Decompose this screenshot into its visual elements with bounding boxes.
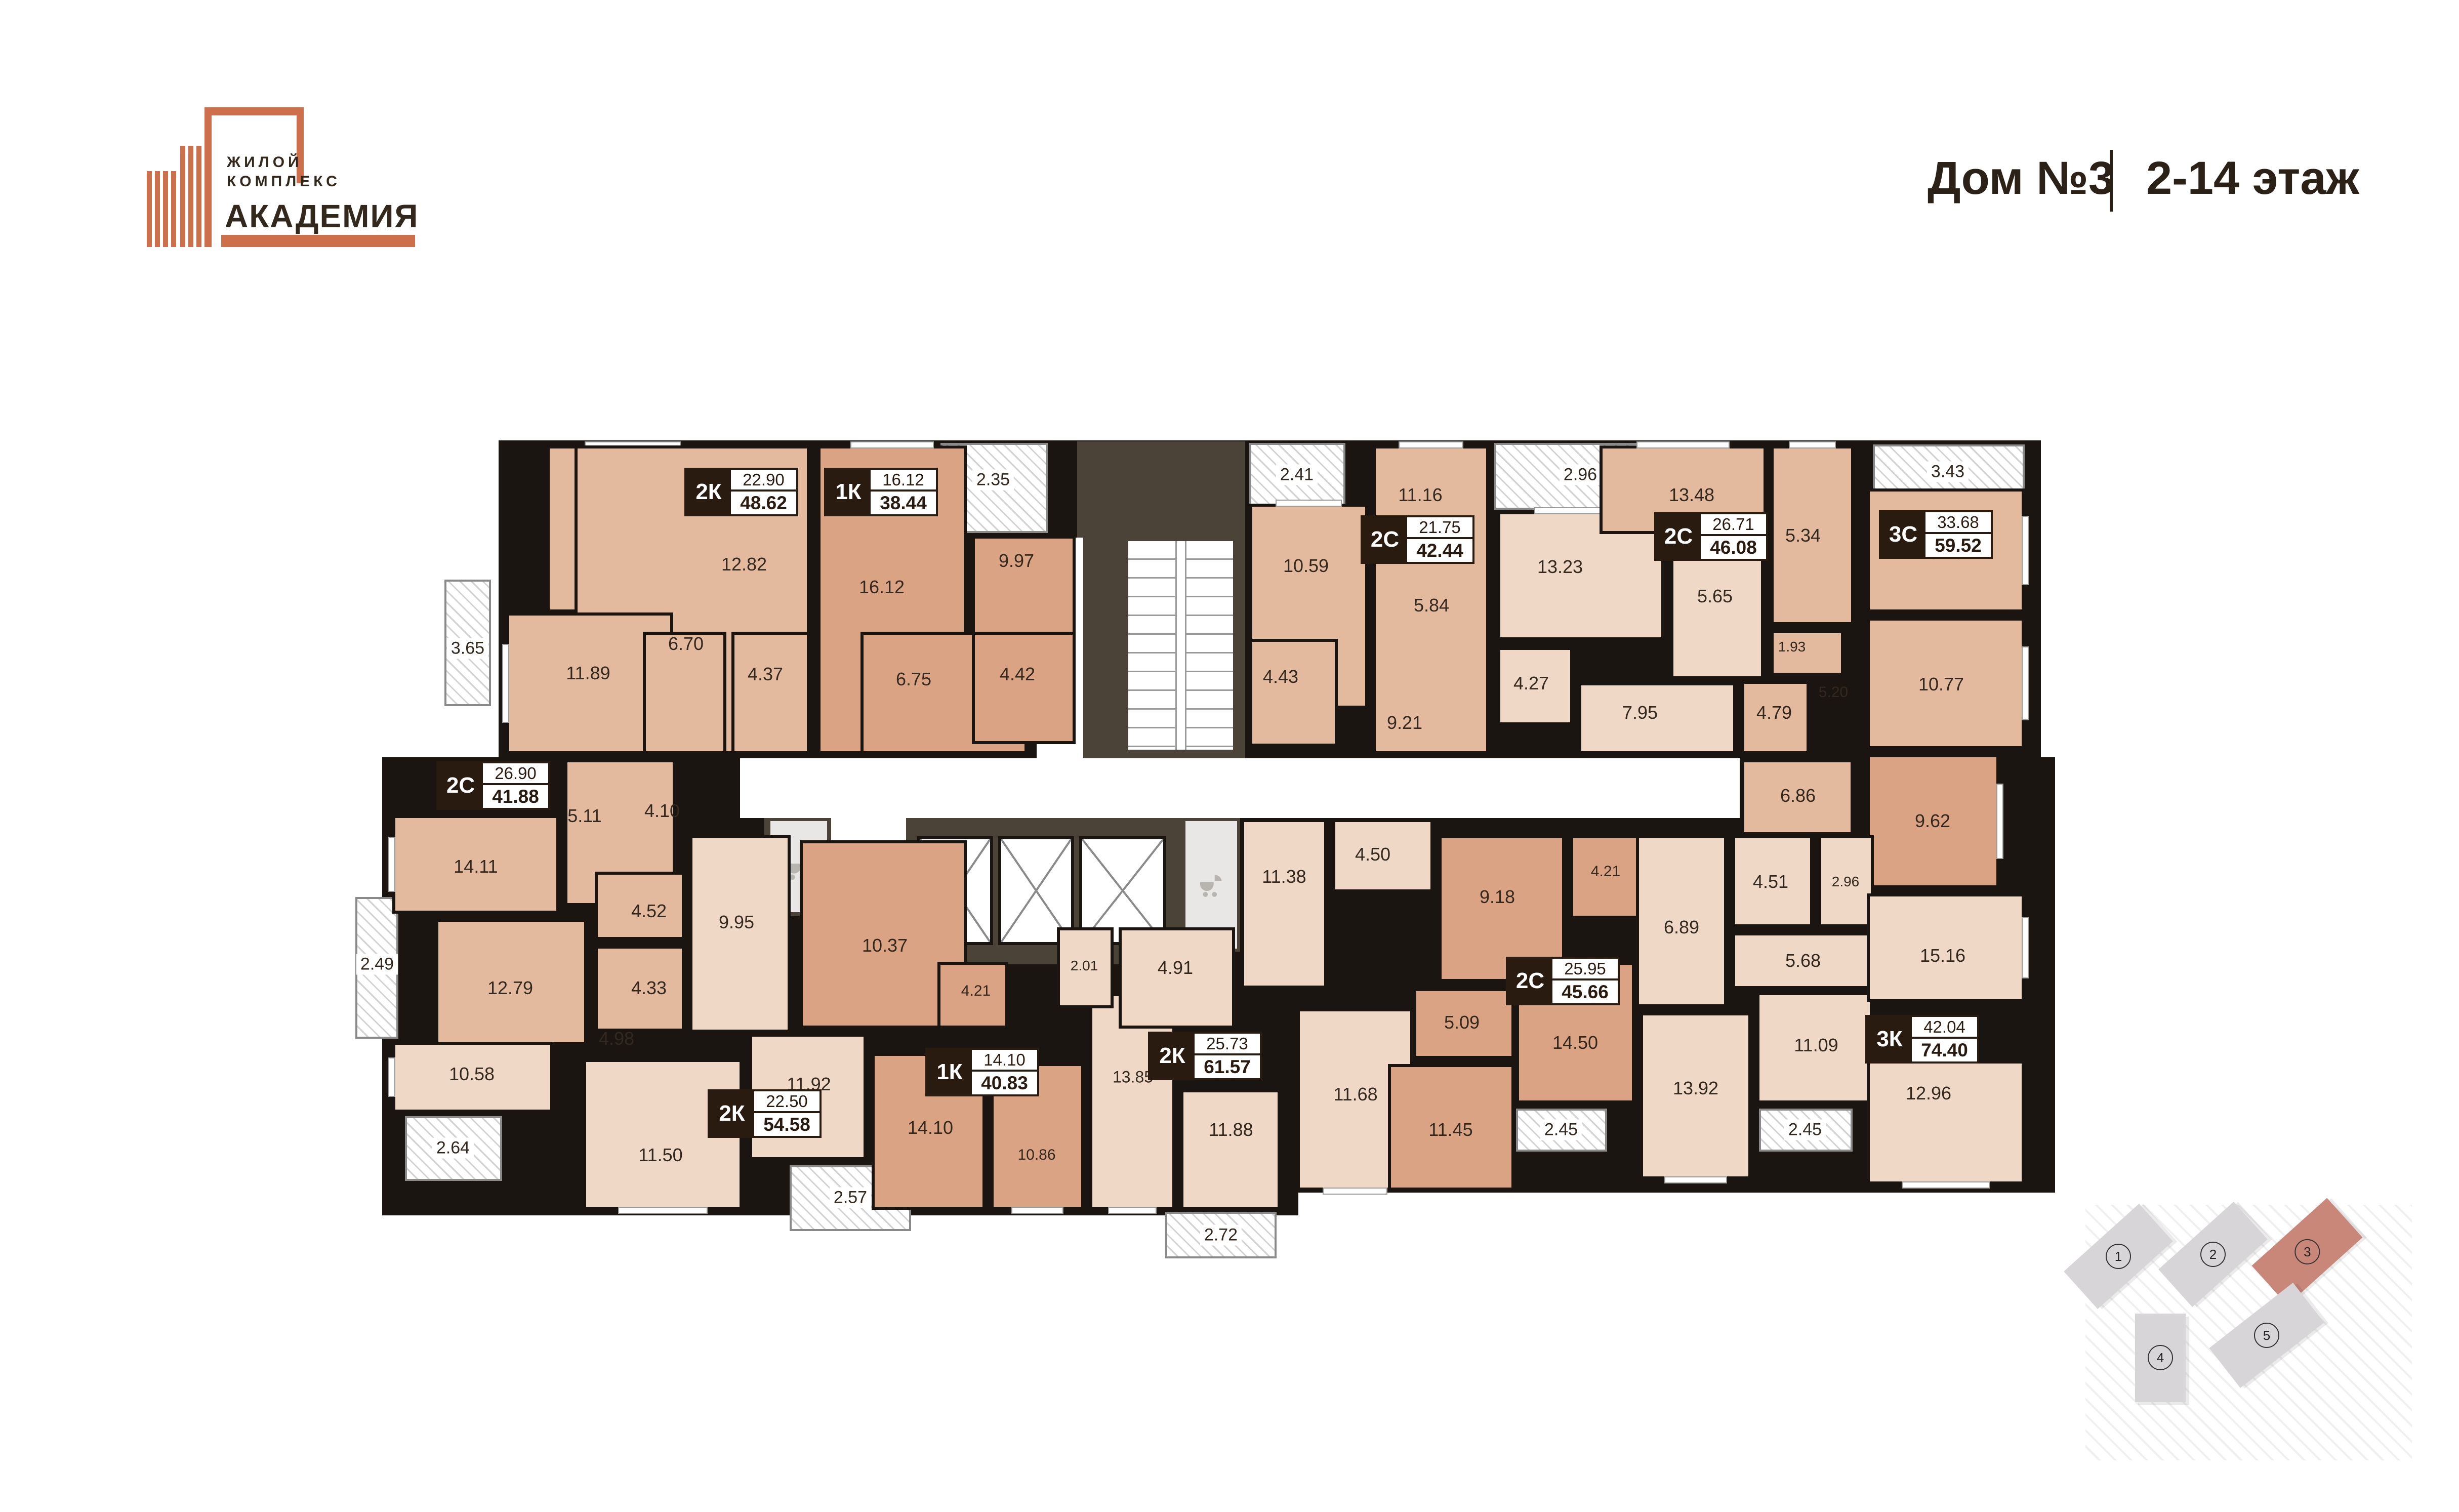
room-area-label: 15.16 (1920, 945, 1965, 966)
living-area: 26.90 (483, 763, 548, 785)
apartment-tag-2с[interactable]: 2С26.7146.08 (1654, 512, 1768, 561)
balcony-area-label: 2.45 (1540, 1120, 1582, 1140)
room-area-label: 4.43 (1263, 666, 1298, 687)
room-area-label: 5.09 (1444, 1012, 1480, 1033)
balcony-area-label: 2.35 (972, 470, 1014, 491)
page: ЖИЛОЙ КОМПЛЕКС АКАДЕМИЯ Дом №3 2-14 этаж… (0, 0, 2459, 1512)
apartment-type: 2К (686, 470, 731, 514)
total-area: 74.40 (1912, 1039, 1977, 1061)
balcony-area-label: 2.45 (1784, 1120, 1826, 1140)
total-area: 40.83 (972, 1072, 1037, 1094)
apartment-type: 2С (1363, 517, 1407, 562)
room-area-label: 10.59 (1283, 555, 1329, 577)
room-area-label: 6.70 (668, 633, 704, 655)
room-area-label: 4.79 (1756, 702, 1792, 723)
room-area-label: 9.95 (719, 912, 754, 933)
apartment-type: 2С (1656, 514, 1701, 559)
apartment-tag-1к[interactable]: 1К14.1040.83 (925, 1048, 1039, 1096)
window (1664, 1176, 1727, 1183)
balcony-area-label: 3.43 (1927, 462, 1969, 482)
room (1867, 1060, 2025, 1184)
balcony-area-label: 2.41 (1276, 465, 1318, 485)
window (1996, 784, 2003, 859)
room-area-label: 9.21 (1387, 712, 1422, 733)
room-area-label: 13.48 (1669, 484, 1714, 506)
window (1636, 441, 1730, 448)
total-area: 45.66 (1552, 980, 1618, 1003)
room-area-label: 11.50 (638, 1145, 682, 1166)
apartment-tag-2с[interactable]: 2С25.9545.66 (1506, 957, 1620, 1005)
room-area-label: 4.21 (961, 983, 991, 1000)
corridor (740, 758, 1740, 818)
apartment-tag-2с[interactable]: 2С26.9041.88 (436, 761, 550, 810)
room-area-label: 4.91 (1158, 957, 1193, 978)
room (689, 835, 791, 1033)
apartment-areas: 25.9545.66 (1552, 959, 1618, 1003)
apartment-areas: 22.5054.58 (754, 1091, 819, 1136)
total-area: 42.44 (1407, 539, 1472, 562)
apartment-tag-2с[interactable]: 2С21.7542.44 (1361, 515, 1474, 564)
room-area-label: 14.50 (1552, 1032, 1598, 1053)
window (2022, 516, 2029, 585)
room (1241, 819, 1327, 989)
room-area-label: 9.18 (1480, 886, 1515, 908)
room-area-label: 2.96 (1832, 874, 1860, 890)
window (618, 1207, 707, 1214)
minimap-building-number: 3 (2294, 1239, 2320, 1264)
room-area-label: 5.68 (1785, 950, 1821, 971)
room-area-label: 4.50 (1355, 844, 1390, 865)
window (1276, 500, 1342, 507)
room-area-label: 5.20 (1819, 684, 1848, 701)
apartment-tag-1к[interactable]: 1К16.1238.44 (824, 468, 938, 516)
apartment-type: 2К (710, 1091, 754, 1136)
window (1902, 1181, 1990, 1189)
total-area: 61.57 (1195, 1055, 1260, 1078)
room-area-label: 9.97 (999, 550, 1034, 571)
apartment-areas: 16.1238.44 (871, 470, 936, 514)
apartment-type: 2К (1150, 1034, 1195, 1078)
total-area: 54.58 (754, 1113, 819, 1136)
window (1399, 441, 1464, 448)
apartment-type: 2С (1508, 959, 1552, 1003)
room-area-label: 11.68 (1333, 1084, 1377, 1105)
floors-title: 2-14 этаж (2146, 152, 2359, 205)
room-area-label: 4.21 (1591, 863, 1620, 880)
apartment-tag-2к[interactable]: 2К25.7361.57 (1148, 1032, 1262, 1080)
living-area: 33.68 (1925, 512, 1991, 534)
room (731, 632, 810, 754)
room-area-label: 4.37 (748, 664, 783, 685)
apartment-tag-3к[interactable]: 3К42.0474.40 (1865, 1015, 1979, 1064)
room-area-label: 4.51 (1753, 871, 1788, 892)
balcony-area-label: 2.49 (356, 954, 398, 975)
room-area-label: 4.52 (631, 901, 667, 922)
room-area-label: 11.45 (1428, 1119, 1472, 1140)
minimap-building-number: 2 (2200, 1242, 2226, 1267)
room-area-label: 16.12 (859, 577, 905, 598)
room-area-label: 4.42 (1000, 664, 1035, 685)
apartment-tag-2к[interactable]: 2К22.5054.58 (708, 1089, 822, 1138)
living-area: 22.50 (754, 1091, 819, 1113)
room-area-label: 4.98 (599, 1028, 634, 1049)
window (1108, 1207, 1156, 1214)
room-area-label: 12.79 (487, 977, 533, 999)
room-area-label: 1.93 (1778, 639, 1806, 655)
room-area-label: 5.34 (1785, 525, 1821, 546)
apartment-type: 2С (438, 763, 483, 808)
room-area-label: 13.23 (1537, 556, 1583, 578)
room-area-label: 5.11 (567, 805, 601, 827)
room-area-label: 13.92 (1673, 1078, 1718, 1099)
logo-name: АКАДЕМИЯ (225, 197, 419, 235)
room (1180, 1089, 1281, 1210)
window (1789, 441, 1835, 448)
total-area: 59.52 (1925, 534, 1991, 557)
balcony-area-label: 2.96 (1560, 465, 1601, 485)
room-area-label: 10.86 (1017, 1147, 1055, 1164)
window (2022, 917, 2029, 978)
apartment-type: 3К (1867, 1017, 1912, 1061)
window (850, 441, 934, 448)
balcony-area-label: 3.65 (447, 638, 488, 659)
title-divider (2110, 150, 2113, 212)
room-area-label: 4.33 (631, 977, 667, 999)
window (388, 1057, 395, 1097)
staircase (1126, 539, 1235, 752)
room-area-label: 11.38 (1262, 866, 1306, 887)
balcony-area-label: 2.72 (1200, 1225, 1242, 1246)
room-area-label: 10.37 (862, 935, 908, 956)
window (388, 837, 395, 892)
window (502, 644, 509, 723)
room-area-label: 11.89 (566, 663, 610, 684)
room-area-label: 11.88 (1209, 1119, 1253, 1140)
room-area-label: 12.96 (1906, 1083, 1951, 1104)
room-area-label: 9.62 (1915, 810, 1950, 832)
logo-line2: КОМПЛЕКС (227, 173, 341, 190)
living-area: 25.73 (1195, 1034, 1260, 1055)
minimap-building-number: 1 (2106, 1244, 2131, 1269)
living-area: 25.95 (1552, 959, 1618, 980)
apartment-type: 3С (1881, 512, 1925, 557)
apartment-type: 1К (826, 470, 871, 514)
room-area-label: 13.85 (1113, 1068, 1153, 1087)
room-area-label: 6.89 (1664, 917, 1699, 938)
logo-line1: ЖИЛОЙ (227, 154, 303, 171)
total-area: 48.62 (731, 492, 796, 514)
apartment-type: 1К (927, 1050, 972, 1094)
room-area-label: 5.65 (1697, 586, 1733, 607)
apartment-areas: 22.9048.62 (731, 470, 796, 514)
living-area: 26.71 (1701, 514, 1766, 536)
room-area-label: 6.86 (1780, 785, 1816, 806)
minimap-building-number: 4 (2148, 1345, 2173, 1370)
apartment-areas: 42.0474.40 (1912, 1017, 1977, 1061)
window (2022, 646, 2029, 720)
room-area-label: 5.84 (1414, 595, 1449, 616)
room-area-label: 11.16 (1398, 484, 1442, 506)
room-area-label: 2.01 (1071, 958, 1098, 974)
balcony-area-label: 2.64 (432, 1138, 474, 1159)
minimap-building-4[interactable]: 4 (2135, 1314, 2186, 1402)
living-area: 16.12 (871, 470, 936, 492)
room-area-label: 14.11 (454, 856, 498, 877)
total-area: 38.44 (871, 492, 936, 514)
living-area: 22.90 (731, 470, 796, 492)
total-area: 41.88 (483, 785, 548, 808)
room-area-label: 4.10 (644, 800, 680, 822)
apartment-areas: 33.6859.52 (1925, 512, 1991, 557)
window (1011, 1207, 1064, 1214)
room-area-label: 10.58 (449, 1064, 495, 1085)
apartment-tag-2к[interactable]: 2К22.9048.62 (684, 468, 798, 516)
balcony-area-label: 2.57 (830, 1188, 871, 1208)
living-area: 21.75 (1407, 517, 1472, 539)
apartment-areas: 26.9041.88 (483, 763, 548, 808)
living-area: 42.04 (1912, 1017, 1977, 1039)
apartment-areas: 25.7361.57 (1195, 1034, 1260, 1078)
room-area-label: 12.82 (721, 554, 767, 575)
room (1249, 639, 1338, 747)
apartment-tag-3с[interactable]: 3С33.6859.52 (1879, 510, 1993, 559)
apartment-areas: 26.7146.08 (1701, 514, 1766, 559)
room-area-label: 7.95 (1622, 702, 1658, 723)
apartment-areas: 14.1040.83 (972, 1050, 1037, 1094)
room-area-label: 14.10 (908, 1117, 953, 1138)
total-area: 46.08 (1701, 536, 1766, 559)
apartment-areas: 21.7542.44 (1407, 517, 1472, 562)
room-area-label: 10.77 (1918, 674, 1964, 695)
room-area-label: 4.27 (1513, 673, 1549, 694)
house-title: Дом №3 (1928, 152, 2114, 205)
room-area-label: 11.09 (1794, 1035, 1838, 1056)
living-area: 14.10 (972, 1050, 1037, 1072)
window (1323, 1188, 1388, 1195)
room (972, 632, 1076, 744)
room-area-label: 6.75 (896, 669, 931, 690)
minimap-building-number: 5 (2254, 1323, 2279, 1348)
